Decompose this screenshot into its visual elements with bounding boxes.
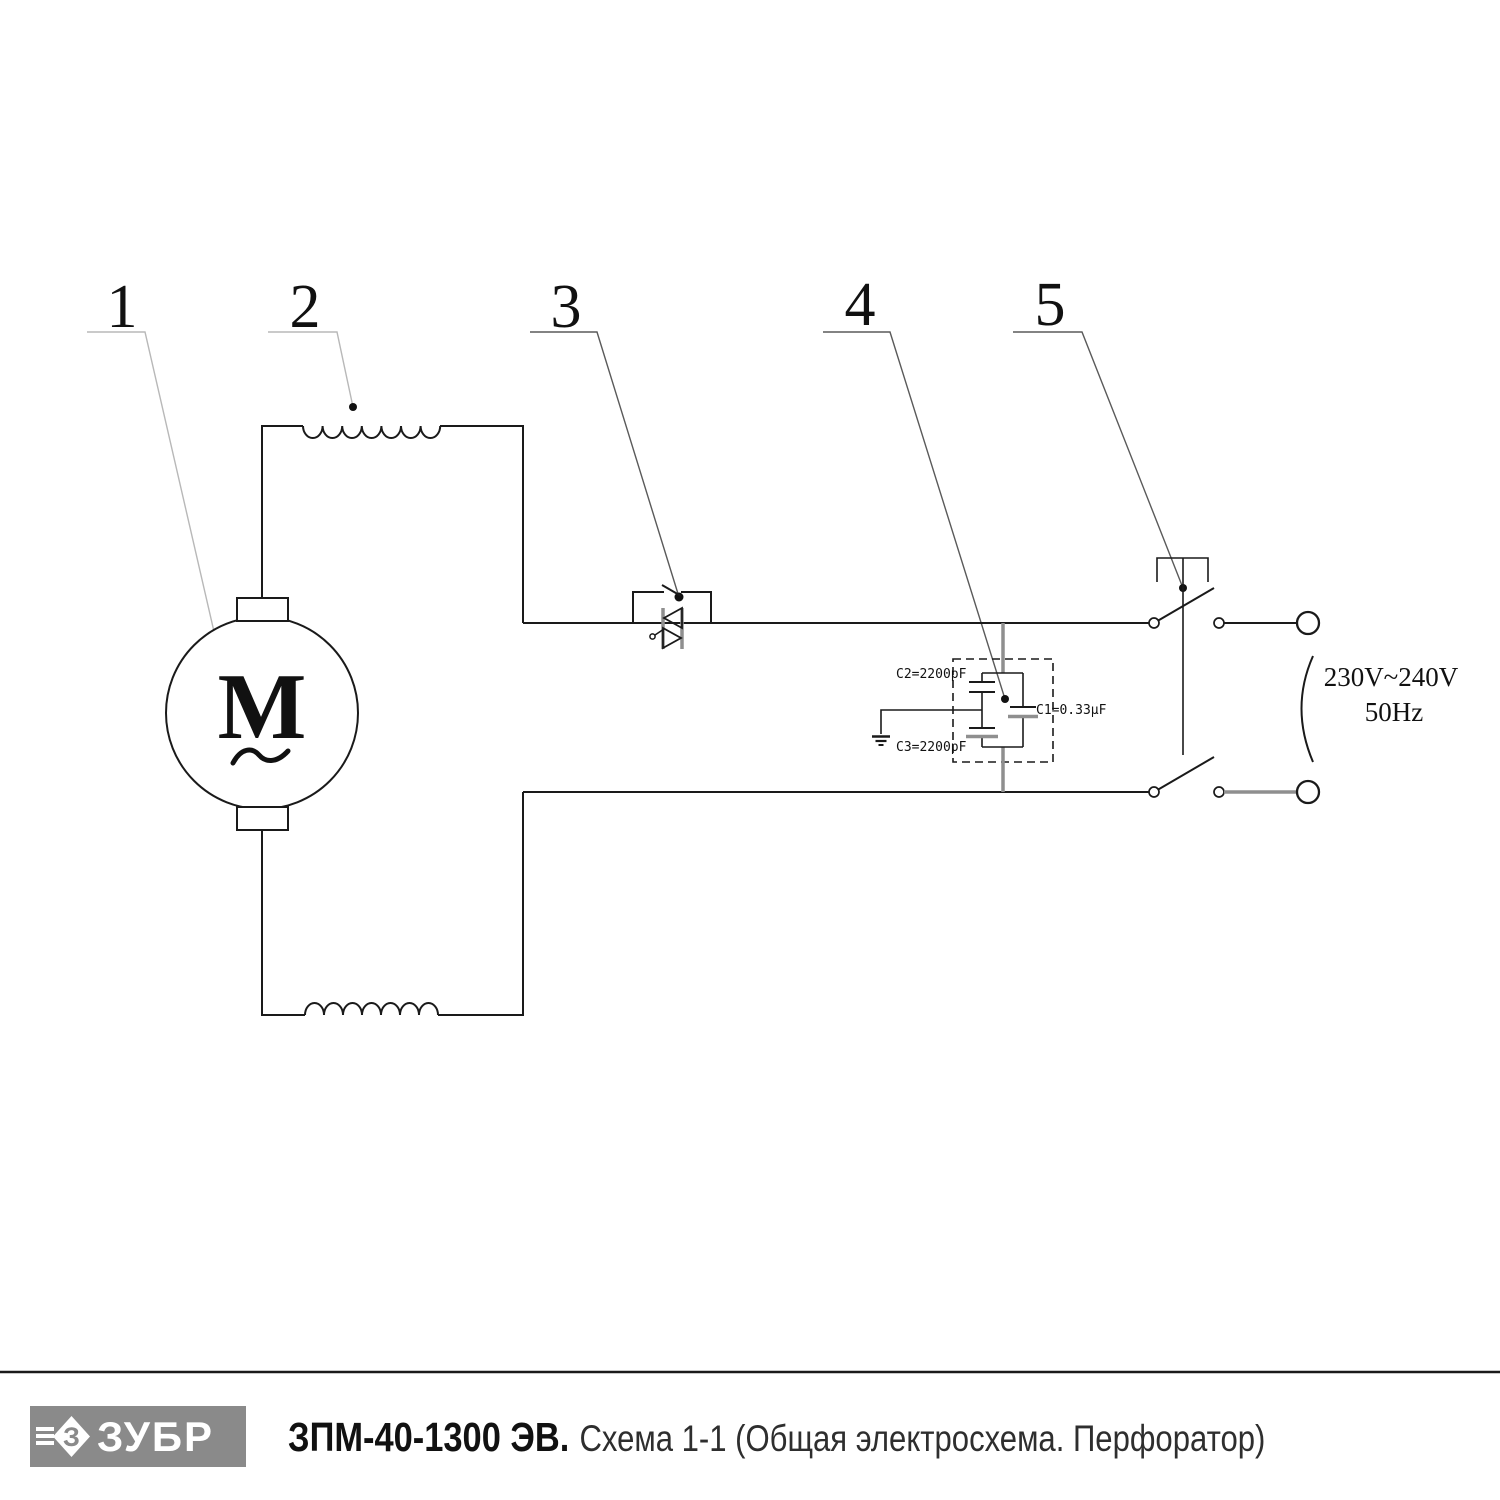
wire-coil-bottom-to-rail [438,792,523,1015]
power-switch [1149,558,1319,803]
supply-voltage-label: 230V~240V [1324,662,1459,692]
motor-symbol: M [166,598,358,830]
wiring [262,426,1149,1015]
bypass-switch-blade [662,585,681,596]
logo-speed-line-1 [36,1427,54,1431]
supply-frequency-label: 50Hz [1365,697,1423,727]
logo-letter: З [63,1422,80,1452]
logo-speed-line-3 [36,1441,54,1445]
ground-icon [872,737,890,746]
supply-brace [1302,656,1314,762]
circuit-diagram: 1 2 3 4 5 M [0,0,1500,1500]
callout-3-number: 3 [551,273,582,341]
field-coil-top [303,426,440,438]
callout-5-leader-line [1013,332,1183,588]
motor-brush-top [237,598,288,621]
callout-4: 4 [823,271,1009,703]
wire-motor-to-coil-top [262,426,303,600]
mains-supply: 230V~240V 50Hz [1302,656,1459,762]
callout-4-number: 4 [845,271,876,339]
bypass-frame-right [681,592,711,623]
switch-contact-top [1214,618,1224,628]
callout-1: 1 [87,273,222,653]
callout-1-leader-line [87,332,218,649]
footer-title-model: ЗПМ-40-1300 ЭВ. [288,1415,569,1460]
footer-title: ЗПМ-40-1300 ЭВ.Схема 1-1 (Общая электрос… [288,1415,1265,1460]
logo-speed-line-2 [36,1434,54,1438]
wire-coil-top-to-rail [440,426,523,623]
schematic-page: 1 2 3 4 5 M [0,0,1500,1500]
motor-letter: M [218,655,307,759]
callout-5: 5 [1013,271,1187,592]
ground-tap-wire [881,710,982,734]
field-coil-bottom [305,1003,438,1015]
triac-triangle-lower [663,628,681,648]
callout-4-dot [1001,695,1009,703]
callout-5-number: 5 [1035,271,1066,339]
bypass-frame-left [633,592,664,623]
switch-contact-bottom [1214,787,1224,797]
callout-2: 2 [268,273,357,411]
speed-regulator-triac [633,585,711,649]
c2-label: C2=2200pF [896,667,967,682]
callout-2-number: 2 [290,273,321,341]
triac-triangle-upper [664,608,682,628]
switch-pivot-top [1149,618,1159,628]
switch-pivot-bottom [1149,787,1159,797]
footer-title-subtitle: Схема 1-1 (Общая электросхема. Перфорато… [579,1419,1265,1460]
callout-3-leader-line [530,332,679,597]
footer: З ЗУБР ЗПМ-40-1300 ЭВ.Схема 1-1 (Общая э… [0,1372,1500,1467]
brand-logo-text: ЗУБР [97,1413,214,1460]
c1-label: C1=0.33µF [1036,703,1107,718]
plug-terminal-bottom [1297,781,1319,803]
switch-blade-top [1154,588,1214,623]
c3-label: C3=2200pF [896,740,967,755]
callout-2-leader-line [268,332,353,407]
motor-brush-bottom [237,807,288,830]
callout-2-dot [349,403,357,411]
wire-motor-to-coil-bottom [262,828,305,1015]
plug-terminal-top [1297,612,1319,634]
callout-3: 3 [530,273,684,602]
callout-1-number: 1 [107,273,138,341]
triac-gate-terminal [650,634,655,639]
callout-4-leader-line [823,332,1005,699]
switch-blade-bottom [1154,757,1214,792]
